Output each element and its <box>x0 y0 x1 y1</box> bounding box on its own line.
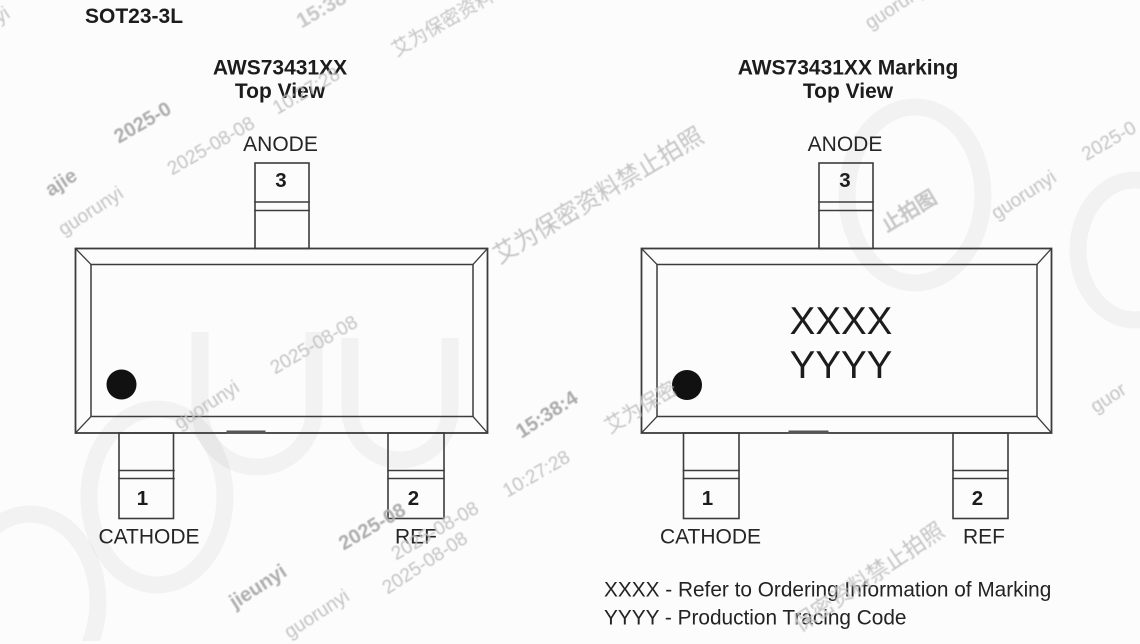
svg-text:2: 2 <box>972 487 983 510</box>
svg-text:REF: REF <box>963 526 1005 549</box>
svg-text:Top View: Top View <box>803 80 894 103</box>
svg-text:3: 3 <box>275 169 286 192</box>
svg-text:XXXX: XXXX <box>790 300 893 343</box>
svg-text:1: 1 <box>137 487 148 510</box>
svg-text:YYYY: YYYY <box>790 344 893 387</box>
svg-text:CATHODE: CATHODE <box>660 526 761 549</box>
svg-text:3: 3 <box>839 169 850 192</box>
svg-text:CATHODE: CATHODE <box>98 526 199 549</box>
svg-text:ANODE: ANODE <box>243 133 318 156</box>
svg-text:SOT23-3L: SOT23-3L <box>85 5 183 28</box>
svg-text:1: 1 <box>702 487 713 510</box>
svg-text:AWS73431XX Marking: AWS73431XX Marking <box>738 57 959 80</box>
svg-text:YYYY - Production Tracing Code: YYYY - Production Tracing Code <box>604 607 907 630</box>
svg-text:2: 2 <box>408 487 419 510</box>
svg-text:ANODE: ANODE <box>808 133 883 156</box>
